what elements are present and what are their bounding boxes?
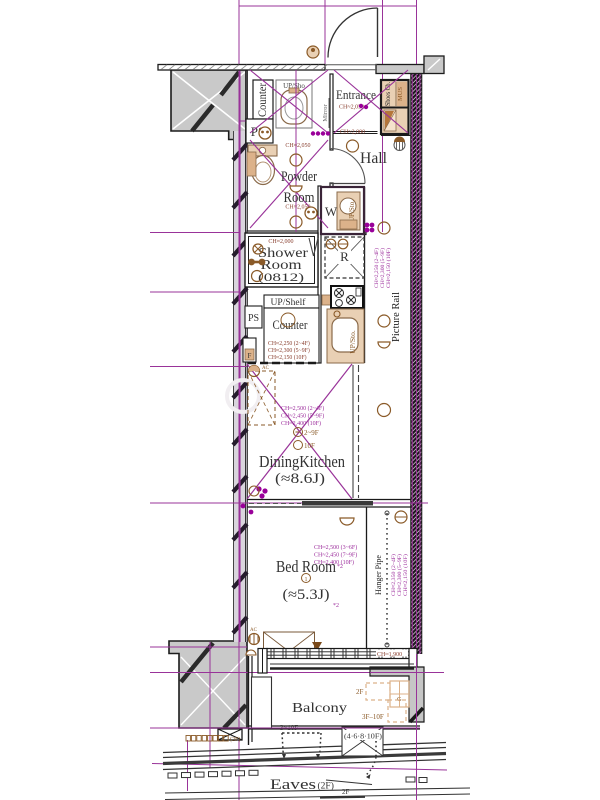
svg-text:CH≈2,000: CH≈2,000 <box>268 239 293 245</box>
svg-text:Hanger Pipe: Hanger Pipe <box>373 555 383 595</box>
svg-text:Picture Rail: Picture Rail <box>391 292 402 342</box>
svg-text:CH≈2,400 (10F): CH≈2,400 (10F) <box>281 420 321 427</box>
svg-text:3F–10F: 3F–10F <box>362 713 384 721</box>
svg-text:W: W <box>325 204 338 219</box>
svg-text:2~9F: 2~9F <box>304 429 319 437</box>
svg-text:AC: AC <box>262 366 270 371</box>
svg-text:AC: AC <box>250 628 258 633</box>
svg-text:CH≈2,300 (5~9F): CH≈2,300 (5~9F) <box>396 554 403 596</box>
svg-text:(4·6·8·10F): (4·6·8·10F) <box>344 733 383 741</box>
svg-text:Shoes Cb.: Shoes Cb. <box>383 82 392 106</box>
svg-text:CH≈2,450 (7~9F): CH≈2,450 (7~9F) <box>314 552 357 559</box>
svg-text:(0812): (0812) <box>258 270 304 284</box>
svg-text:Powder: Powder <box>281 169 317 185</box>
svg-text:Balcony: Balcony <box>292 700 347 715</box>
svg-text:DiningKitchen: DiningKitchen <box>259 452 345 471</box>
svg-text:CH≈2,150 (10F): CH≈2,150 (10F) <box>268 354 307 361</box>
svg-text:Eaves: Eaves <box>270 777 316 793</box>
svg-text:CH≈2,150 (10F): CH≈2,150 (10F) <box>402 554 409 596</box>
svg-text:CH≈2,250 (2~4F): CH≈2,250 (2~4F) <box>373 248 380 288</box>
svg-text:*2: *2 <box>333 603 339 609</box>
svg-text:PS: PS <box>248 313 259 324</box>
svg-text:CH≈2,450 (5~9F): CH≈2,450 (5~9F) <box>281 413 324 420</box>
svg-text:CH≈2,500 (2~4F): CH≈2,500 (2~4F) <box>281 405 324 412</box>
svg-text:CH≈2,050: CH≈2,050 <box>285 143 310 149</box>
svg-text:UP/Sto.: UP/Sto. <box>348 330 357 354</box>
svg-text:(2F): (2F) <box>230 736 240 743</box>
svg-text:R: R <box>340 249 349 264</box>
svg-text:CH≈2,250 (2~4F): CH≈2,250 (2~4F) <box>268 340 310 347</box>
svg-text:CH≈2,300 (5~9F): CH≈2,300 (5~9F) <box>268 347 310 354</box>
svg-text:MUS: MUS <box>397 87 404 101</box>
svg-text:Hall: Hall <box>360 150 388 167</box>
svg-text:Mirror: Mirror <box>322 104 329 122</box>
svg-text:Counter: Counter <box>255 83 269 117</box>
svg-text:F: F <box>248 352 252 360</box>
svg-text:CH≈2,000: CH≈2,000 <box>340 130 365 136</box>
svg-text:Counter: Counter <box>273 318 309 332</box>
svg-text:2F: 2F <box>356 688 364 696</box>
svg-text:(2F): (2F) <box>318 781 334 792</box>
svg-text:CH≈1,900: CH≈1,900 <box>377 652 402 658</box>
svg-text:2F: 2F <box>342 788 350 796</box>
svg-text:CH≈2,350 (2~4F): CH≈2,350 (2~4F) <box>390 554 397 596</box>
svg-text:10F: 10F <box>304 442 315 450</box>
svg-text:CH≈2,400 (10F): CH≈2,400 (10F) <box>314 559 354 566</box>
svg-text:(≈8.6J): (≈8.6J) <box>275 471 325 487</box>
svg-text:1: 1 <box>305 577 308 583</box>
svg-text:UP/Sto.: UP/Sto. <box>348 200 356 222</box>
svg-text:CH≈2,150 (10F): CH≈2,150 (10F) <box>385 248 392 288</box>
svg-text:(≈5.3J): (≈5.3J) <box>283 587 330 603</box>
svg-text:UP/Shelf: UP/Shelf <box>271 297 306 307</box>
svg-text:CH≈2,300 (5~9F): CH≈2,300 (5~9F) <box>379 248 386 288</box>
svg-text:CH≈2,500 (3~6F): CH≈2,500 (3~6F) <box>314 544 357 551</box>
